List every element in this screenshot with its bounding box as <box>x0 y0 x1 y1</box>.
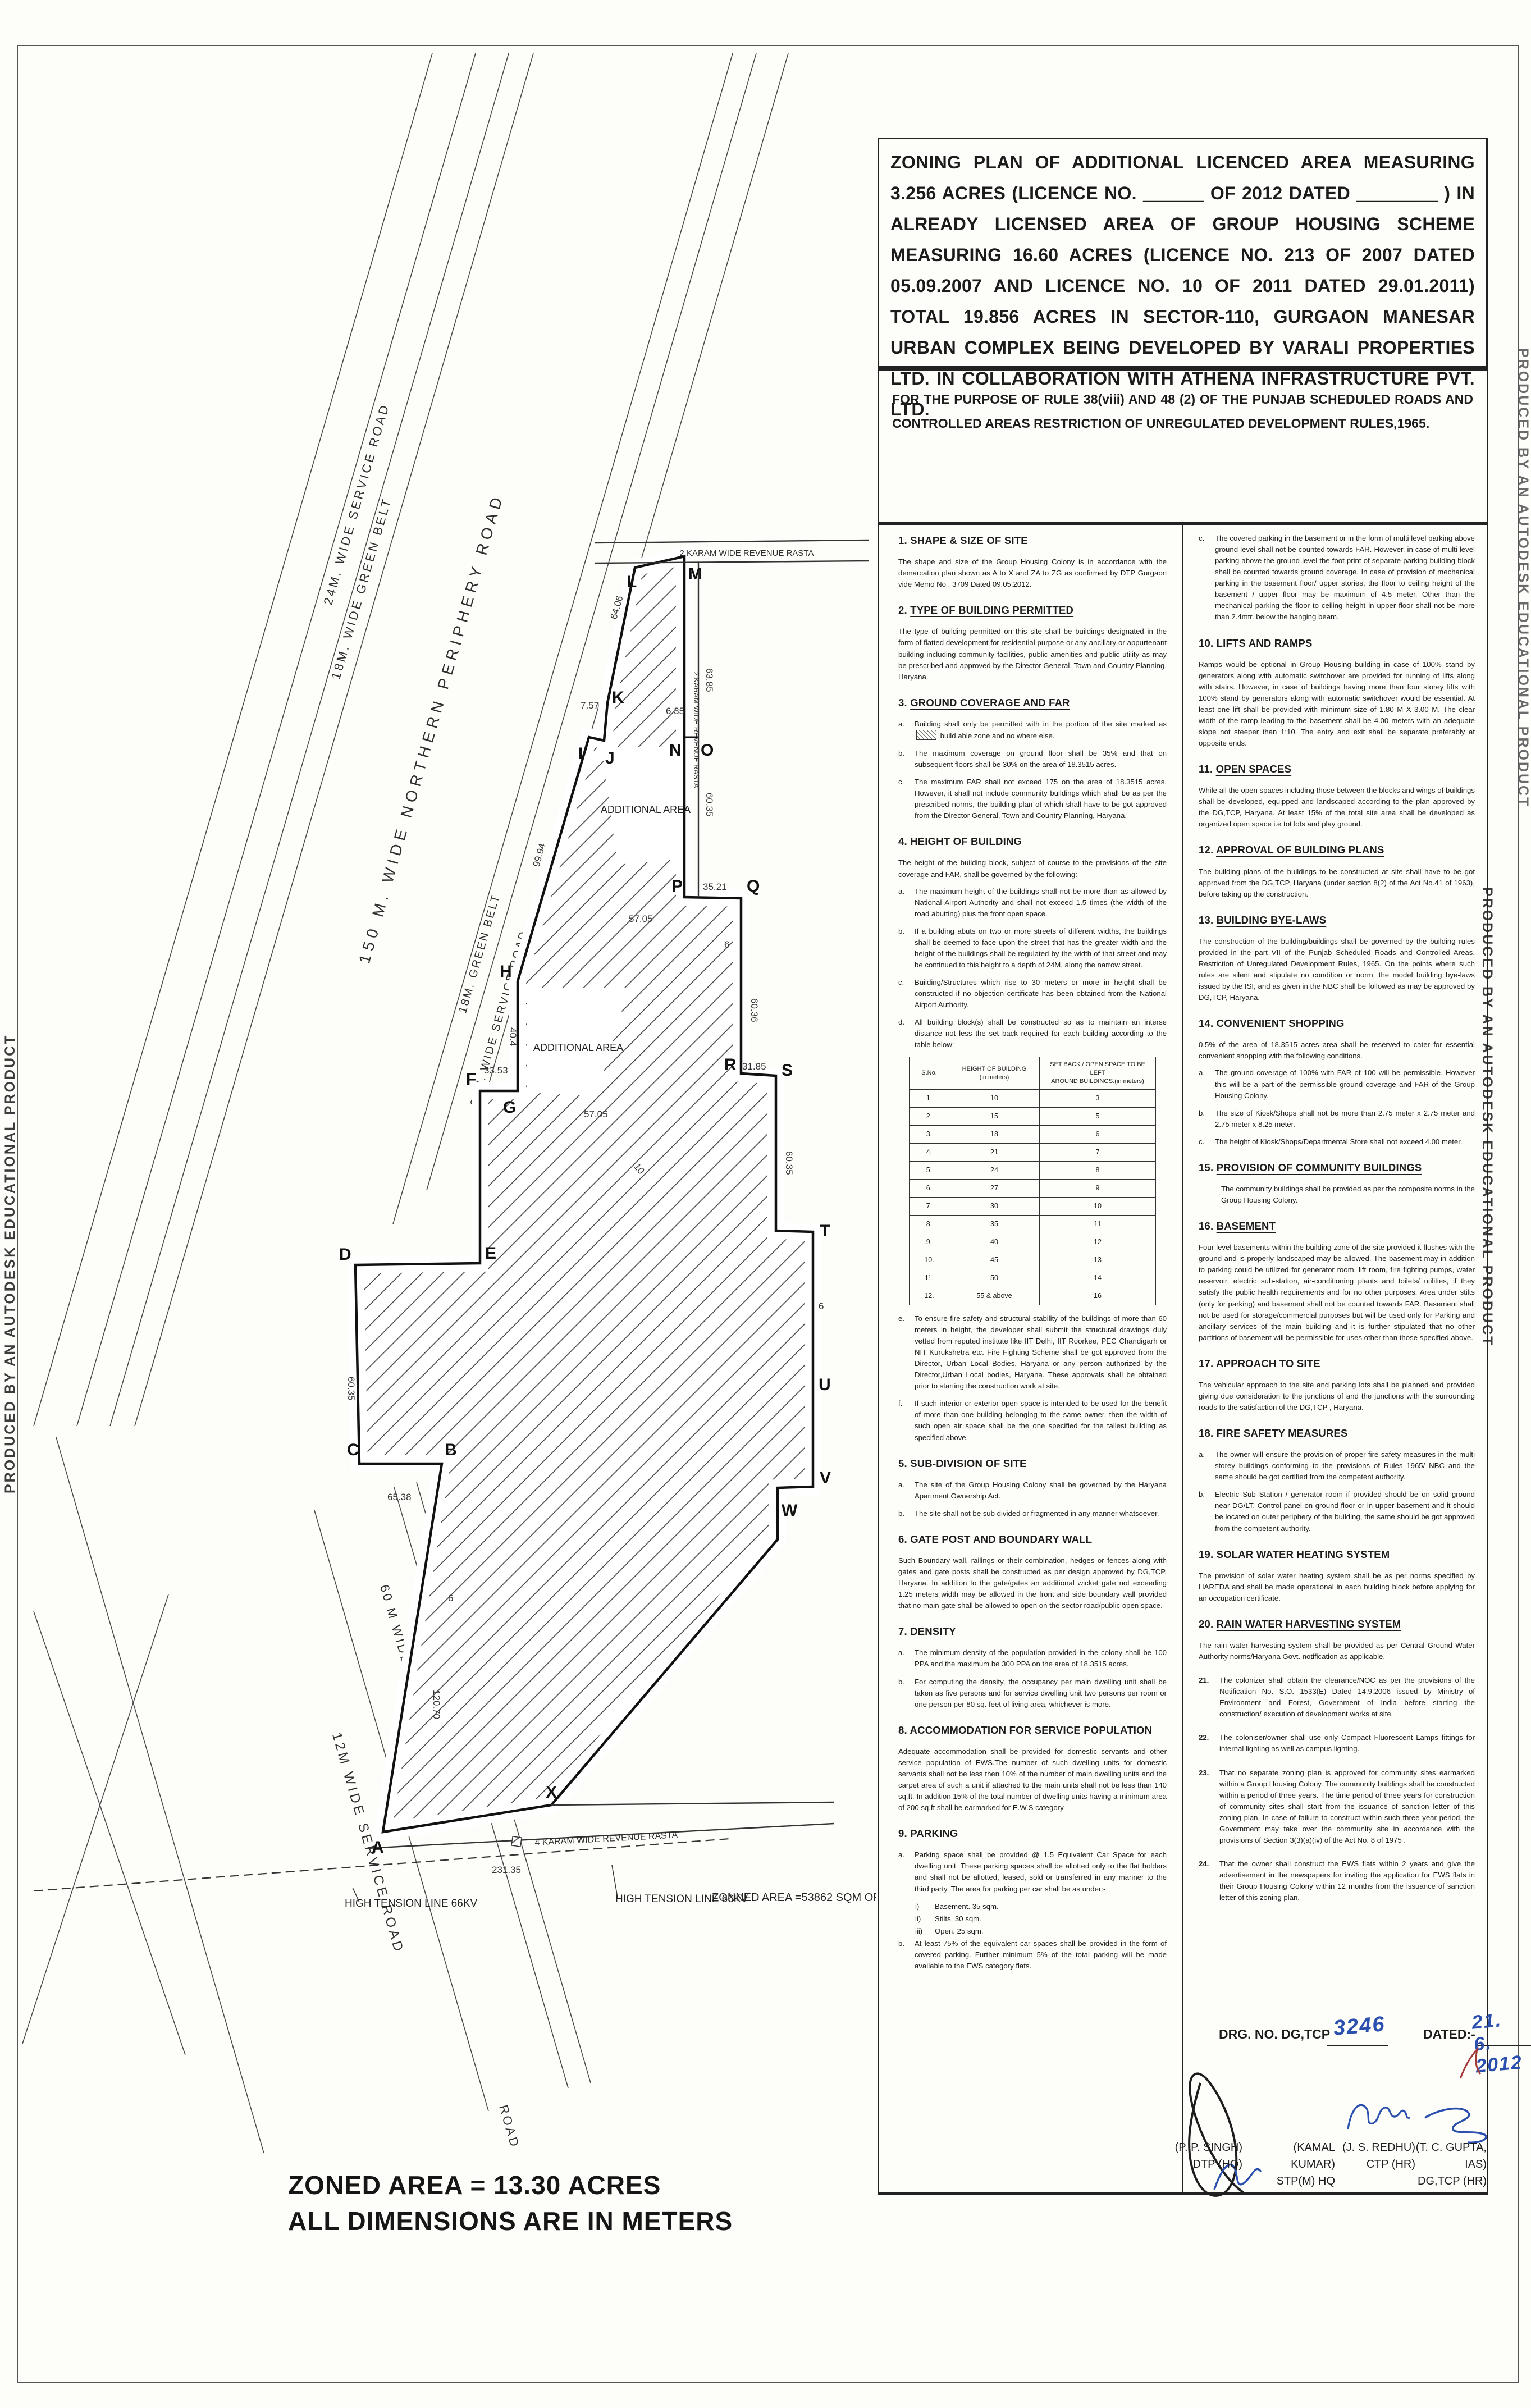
svg-text:6: 6 <box>724 939 729 950</box>
svg-text:W: W <box>782 1501 798 1520</box>
table-row: 3.186 <box>910 1125 1156 1143</box>
additional-area-label-1: ADDITIONAL AREA <box>601 804 691 815</box>
signatory-4-title: DG,TCP (HR) <box>1402 2173 1487 2190</box>
item-text: If a building abuts on two or more stree… <box>915 926 1167 971</box>
section-9-item-b: b.At least 75% of the equivalent car spa… <box>898 1938 1167 1972</box>
item-text: Stilts. 30 sqm. <box>935 1913 981 1925</box>
section-7-title: DENSITY <box>910 1625 956 1637</box>
item-label: b. <box>1199 1489 1210 1534</box>
svg-text:A: A <box>372 1838 384 1857</box>
section-2: 2. TYPE OF BUILDING PERMITTED The type o… <box>898 602 1167 682</box>
item-text: build able zone and no where else. <box>940 732 1055 740</box>
clause-number: 21. <box>1199 1675 1214 1720</box>
signatory-2-name: (KAMAL KUMAR) <box>1251 2139 1335 2173</box>
parking-open: iii)Open. 25 sqm. <box>915 1926 1167 1937</box>
signature-js-redhu <box>1348 2105 1410 2129</box>
item-label: a. <box>1199 1449 1210 1483</box>
table-row: 5.248 <box>910 1161 1156 1179</box>
item-text: Building/Structures which rise to 30 met… <box>915 977 1167 1011</box>
section-15-title: PROVISION OF COMMUNITY BUILDINGS <box>1217 1162 1422 1173</box>
clause-number: 23. <box>1199 1767 1214 1846</box>
svg-text:60.35: 60.35 <box>784 1151 794 1175</box>
panel-right-border <box>1487 525 1488 2194</box>
additional-area-label-2: ADDITIONAL AREA <box>533 1042 623 1053</box>
section-7-item-a: a.The minimum density of the population … <box>898 1647 1167 1670</box>
section-13: 13. BUILDING BYE-LAWS The construction o… <box>1199 912 1475 1003</box>
svg-text:35.21: 35.21 <box>703 881 727 892</box>
section-19-body: The provision of solar water heating sys… <box>1199 1570 1475 1604</box>
item-text: The maximum FAR shall not exceed 175 on … <box>915 776 1167 821</box>
purpose-statement: FOR THE PURPOSE OF RULE 38(viii) AND 48 … <box>892 387 1473 435</box>
svg-text:60.35: 60.35 <box>346 1377 357 1401</box>
item-text: At least 75% of the equivalent car space… <box>915 1938 1167 1972</box>
section-4-number: 4. <box>898 835 907 847</box>
section-13-title: BUILDING BYE-LAWS <box>1217 914 1327 926</box>
section-5-title: SUB-DIVISION OF SITE <box>910 1457 1027 1469</box>
clause-text: The coloniser/owner shall use only Compa… <box>1219 1732 1475 1754</box>
title-block: ZONING PLAN OF ADDITIONAL LICENCED AREA … <box>878 138 1488 368</box>
table-row: 8.3511 <box>910 1215 1156 1233</box>
section-8-body: Adequate accommodation shall be provided… <box>898 1746 1167 1813</box>
high-tension-label-1: HIGH TENSION LINE 66KV <box>345 1898 477 1909</box>
section-4-item-f: f.If such interior or exterior open spac… <box>898 1398 1167 1443</box>
section-17-body: The vehicular approach to the site and p… <box>1199 1379 1475 1413</box>
svg-text:N: N <box>669 741 682 760</box>
svg-text:6: 6 <box>448 1593 453 1603</box>
column-divider <box>1182 525 1183 2194</box>
svg-text:120.70: 120.70 <box>431 1690 442 1719</box>
section-7-item-b: b.For computing the density, the occupan… <box>898 1676 1167 1710</box>
item-label: b. <box>898 1508 910 1519</box>
svg-text:6: 6 <box>819 1301 824 1312</box>
clause-24: 24.That the owner shall construct the EW… <box>1199 1858 1475 1903</box>
section-13-number: 13. <box>1199 914 1213 926</box>
section-20-title: RAIN WATER HARVESTING SYSTEM <box>1217 1618 1401 1630</box>
section-16: 16. BASEMENT Four level basements within… <box>1199 1218 1475 1344</box>
section-1-title: SHAPE & SIZE OF SITE <box>910 534 1028 546</box>
section-14: 14. CONVENIENT SHOPPING 0.5% of the area… <box>1199 1016 1475 1148</box>
item-text: The covered parking in the basement or i… <box>1215 533 1475 623</box>
table-row: 2.155 <box>910 1107 1156 1125</box>
section-3-title: GROUND COVERAGE AND FAR <box>910 697 1070 709</box>
section-12: 12. APPROVAL OF BUILDING PLANS The build… <box>1199 842 1475 899</box>
section-6-title: GATE POST AND BOUNDARY WALL <box>910 1533 1092 1545</box>
svg-text:40.4: 40.4 <box>508 1027 518 1046</box>
dimensions-note-big: ALL DIMENSIONS ARE IN METERS <box>288 2206 733 2236</box>
section-15-body: The community buildings shall be provide… <box>1199 1184 1475 1206</box>
zoned-area-big: ZONED AREA = 13.30 ACRES <box>288 2171 661 2200</box>
item-label: b. <box>1199 1108 1210 1130</box>
section-11: 11. OPEN SPACES While all the open space… <box>1199 761 1475 830</box>
section-1-number: 1. <box>898 534 907 546</box>
svg-text:60.35: 60.35 <box>704 793 715 817</box>
section-14-number: 14. <box>1199 1017 1213 1029</box>
item-text: The size of Kiosk/Shops shall not be mor… <box>1215 1108 1475 1130</box>
table-header-height: HEIGHT OF BUILDING(in meters) <box>949 1057 1040 1090</box>
item-label: b. <box>898 748 910 770</box>
svg-text:60.36: 60.36 <box>749 998 760 1022</box>
section-12-title: APPROVAL OF BUILDING PLANS <box>1216 844 1384 856</box>
svg-text:63.85: 63.85 <box>704 668 715 692</box>
section-18-number: 18. <box>1199 1427 1213 1439</box>
section-14-item-a: a.The ground coverage of 100% with FAR o… <box>1199 1067 1475 1101</box>
section-14-title: CONVENIENT SHOPPING <box>1217 1017 1345 1029</box>
item-label: a. <box>898 1647 910 1670</box>
svg-text:H: H <box>500 962 512 981</box>
table-row: 4.217 <box>910 1143 1156 1161</box>
section-9: 9. PARKING a.Parking space shall be prov… <box>898 1826 1167 1972</box>
section-15-number: 15. <box>1199 1162 1213 1173</box>
section-19-number: 19. <box>1199 1548 1213 1560</box>
section-5-number: 5. <box>898 1457 907 1469</box>
svg-text:Q: Q <box>747 877 760 895</box>
item-text: The maximum height of the buildings shal… <box>915 886 1167 920</box>
section-3-item-a: a. Building shall only be permitted with… <box>898 719 1167 742</box>
svg-text:33.53: 33.53 <box>484 1065 508 1076</box>
section-19: 19. SOLAR WATER HEATING SYSTEM The provi… <box>1199 1547 1475 1604</box>
road-label-periphery: 150 M. WIDE NORTHERN PERIPHERY ROAD <box>355 491 507 966</box>
section-9-item-a: a.Parking space shall be provided @ 1.5 … <box>898 1849 1167 1894</box>
section-16-title: BASEMENT <box>1217 1220 1276 1232</box>
item-label: c. <box>898 776 910 821</box>
section-18-item-b: b.Electric Sub Station / generator room … <box>1199 1489 1475 1534</box>
rasta-top-label: 2 KARAM WIDE REVENUE RASTA <box>680 549 814 558</box>
section-3: 3. GROUND COVERAGE AND FAR a. Building s… <box>898 695 1167 822</box>
svg-text:O: O <box>701 741 714 760</box>
section-6-body: Such Boundary wall, railings or their co… <box>898 1555 1167 1611</box>
svg-text:6.35: 6.35 <box>666 706 684 716</box>
svg-text:J: J <box>605 749 615 767</box>
table-row: 1.103 <box>910 1089 1156 1107</box>
table-row: 10.4513 <box>910 1251 1156 1269</box>
signatory-1-name: (P. P. SINGH) <box>1169 2139 1242 2156</box>
svg-text:P: P <box>671 877 683 895</box>
table-header-sno: S.No. <box>910 1057 949 1090</box>
svg-text:V: V <box>820 1469 831 1487</box>
parking-basement: i)Basement. 35 sqm. <box>915 1901 1167 1912</box>
svg-text:L: L <box>627 573 637 591</box>
item-label: c. <box>1199 1136 1210 1148</box>
clause-22: 22.The coloniser/owner shall use only Co… <box>1199 1732 1475 1754</box>
item-label: b. <box>898 1938 910 1972</box>
svg-text:R: R <box>724 1056 737 1074</box>
item-text: Electric Sub Station / generator room if… <box>1215 1489 1475 1534</box>
section-17: 17. APPROACH TO SITE The vehicular appro… <box>1199 1356 1475 1413</box>
item-label: iii) <box>915 1926 930 1937</box>
section-17-number: 17. <box>1199 1358 1213 1369</box>
section-16-number: 16. <box>1199 1220 1213 1232</box>
table-row: 11.5014 <box>910 1269 1156 1287</box>
svg-text:D: D <box>339 1245 351 1264</box>
svg-text:T: T <box>820 1222 830 1240</box>
item-label: c. <box>1199 533 1210 623</box>
section-6: 6. GATE POST AND BOUNDARY WALL Such Boun… <box>898 1532 1167 1611</box>
svg-text:I: I <box>578 744 583 763</box>
section-3-number: 3. <box>898 697 907 709</box>
section-4: 4. HEIGHT OF BUILDING The height of the … <box>898 834 1167 1443</box>
parking-stilts: ii)Stilts. 30 sqm. <box>915 1913 1167 1925</box>
section-11-number: 11. <box>1199 763 1213 775</box>
section-11-title: OPEN SPACES <box>1216 763 1291 775</box>
item-text: The minimum density of the population pr… <box>915 1647 1167 1670</box>
section-11-body: While all the open spaces including thos… <box>1199 785 1475 830</box>
signature-area: DRG. NO. DG,TCP 3246 DATED:- 21. 6. 2012… <box>878 1971 1488 2192</box>
item-text: All building block(s) shall be construct… <box>915 1017 1167 1050</box>
section-4-item-d: d.All building block(s) shall be constru… <box>898 1017 1167 1050</box>
item-text: The height of Kiosk/Shops/Departmental S… <box>1215 1136 1463 1148</box>
section-17-title: APPROACH TO SITE <box>1216 1358 1320 1369</box>
item-label: i) <box>915 1901 930 1912</box>
item-text: Parking space shall be provided @ 1.5 Eq… <box>915 1849 1167 1894</box>
item-label: a. <box>1199 1067 1210 1101</box>
section-7-number: 7. <box>898 1625 907 1637</box>
section-4-item-e: e.To ensure fire safety and structural s… <box>898 1313 1167 1392</box>
road-label-road: ROAD <box>496 2103 522 2150</box>
signature-tc-gupta <box>1425 2109 1486 2143</box>
clause-number: 24. <box>1199 1858 1214 1903</box>
signatory-1: (P. P. SINGH) DTP (HQ) <box>1169 2139 1242 2173</box>
item-label: d. <box>898 1017 910 1050</box>
clause-text: That the owner shall construct the EWS f… <box>1219 1858 1475 1903</box>
signatory-4-name: (T. C. GUPTA, IAS) <box>1402 2139 1487 2173</box>
item-text: Basement. 35 sqm. <box>935 1901 999 1912</box>
panel-left-border <box>878 525 879 2194</box>
purpose-block: FOR THE PURPOSE OF RULE 38(viii) AND 48 … <box>878 368 1488 525</box>
regulations-column-right: c.The covered parking in the basement or… <box>1199 531 1475 1968</box>
section-18: 18. FIRE SAFETY MEASURES a.The owner wil… <box>1199 1425 1475 1534</box>
clause-text: That no separate zoning plan is approved… <box>1219 1767 1475 1846</box>
section-8-number: 8. <box>898 1724 907 1736</box>
svg-text:B: B <box>445 1441 457 1459</box>
section-1-body: The shape and size of the Group Housing … <box>898 556 1167 590</box>
svg-text:U: U <box>819 1376 831 1394</box>
item-text: The site shall not be sub divided or fra… <box>915 1508 1159 1519</box>
section-14-item-c: c.The height of Kiosk/Shops/Departmental… <box>1199 1136 1475 1148</box>
svg-text:7.57: 7.57 <box>581 700 599 711</box>
item-label: a. <box>898 1479 910 1502</box>
section-9-item-c: c.The covered parking in the basement or… <box>1199 533 1475 623</box>
section-20: 20. RAIN WATER HARVESTING SYSTEM The rai… <box>1199 1616 1475 1662</box>
item-text: The maximum coverage on ground floor sha… <box>915 748 1167 770</box>
section-4-item-b: b.If a building abuts on two or more str… <box>898 926 1167 971</box>
clause-21: 21.The colonizer shall obtain the cleara… <box>1199 1675 1475 1720</box>
item-text: The site of the Group Housing Colony sha… <box>915 1479 1167 1502</box>
height-setback-table: S.No. HEIGHT OF BUILDING(in meters) SET … <box>909 1057 1156 1305</box>
svg-text:F: F <box>466 1070 476 1089</box>
clause-number: 22. <box>1199 1732 1214 1754</box>
section-4-intro: The height of the building block, subjec… <box>898 857 1167 880</box>
signatory-2-title: STP(M) HQ <box>1251 2173 1335 2190</box>
signatory-2: (KAMAL KUMAR) STP(M) HQ <box>1251 2139 1335 2190</box>
red-check-mark <box>1460 2049 1480 2078</box>
section-12-number: 12. <box>1199 844 1213 856</box>
section-2-body: The type of building permitted on this s… <box>898 626 1167 682</box>
section-3-item-c: c.The maximum FAR shall not exceed 175 o… <box>898 776 1167 821</box>
svg-text:G: G <box>503 1098 516 1117</box>
section-9-number: 9. <box>898 1827 907 1839</box>
section-12-body: The building plans of the buildings to b… <box>1199 866 1475 900</box>
item-label: a. <box>898 886 910 920</box>
item-text: Open. 25 sqm. <box>935 1926 984 1937</box>
svg-text:M: M <box>688 565 702 583</box>
section-9-title: PARKING <box>910 1827 958 1839</box>
clause-text: The colonizer shall obtain the clearance… <box>1219 1675 1475 1720</box>
section-15: 15. PROVISION OF COMMUNITY BUILDINGS The… <box>1199 1160 1475 1206</box>
item-label: b. <box>898 926 910 971</box>
section-5-item-a: a.The site of the Group Housing Colony s… <box>898 1479 1167 1502</box>
signatory-1-title: DTP (HQ) <box>1169 2156 1242 2173</box>
item-label: f. <box>898 1398 910 1443</box>
section-7: 7. DENSITY a.The minimum density of the … <box>898 1624 1167 1710</box>
section-20-body: The rain water harvesting system shall b… <box>1199 1640 1475 1662</box>
section-3-item-b: b.The maximum coverage on ground floor s… <box>898 748 1167 770</box>
svg-text:E: E <box>485 1244 496 1263</box>
item-text: If such interior or exterior open space … <box>915 1398 1167 1443</box>
section-5: 5. SUB-DIVISION OF SITE a.The site of th… <box>898 1456 1167 1519</box>
item-label: b. <box>898 1676 910 1710</box>
section-14-intro: 0.5% of the area of 18.3515 acres area s… <box>1199 1039 1475 1062</box>
regulations-column-left: 1. SHAPE & SIZE OF SITE The shape and si… <box>898 531 1167 1968</box>
section-4-title: HEIGHT OF BUILDING <box>910 835 1022 847</box>
table-row: 7.3010 <box>910 1197 1156 1215</box>
item-label: a. <box>898 719 910 742</box>
section-6-number: 6. <box>898 1533 907 1545</box>
svg-text:57.05: 57.05 <box>629 913 653 924</box>
rasta-bottom-label: 4 KARAM WIDE REVENUE RASTA <box>534 1830 678 1847</box>
svg-text:65.38: 65.38 <box>387 1492 412 1502</box>
section-18-title: FIRE SAFETY MEASURES <box>1217 1427 1348 1439</box>
item-text: Building shall only be permitted with in… <box>915 720 1167 728</box>
zoning-plan-sheet: { "banner": "PRODUCED BY AN AUTODESK EDU… <box>0 0 1531 2408</box>
section-20-number: 20. <box>1199 1618 1213 1630</box>
section-4-item-a: a.The maximum height of the buildings sh… <box>898 886 1167 920</box>
svg-text:S: S <box>782 1061 793 1080</box>
section-10-body: Ramps would be optional in Group Housing… <box>1199 659 1475 750</box>
section-2-number: 2. <box>898 604 907 616</box>
item-label: c. <box>898 977 910 1011</box>
section-4-item-c: c.Building/Structures which rise to 30 m… <box>898 977 1167 1011</box>
item-text: The ground coverage of 100% with FAR of … <box>1215 1067 1475 1101</box>
section-10: 10. LIFTS AND RAMPS Ramps would be optio… <box>1199 636 1475 750</box>
rasta-side-label: 2 KARAM WIDE REVENUE RASTA <box>692 671 701 788</box>
section-2-title: TYPE OF BUILDING PERMITTED <box>910 604 1073 616</box>
item-text: For computing the density, the occupancy… <box>915 1676 1167 1710</box>
table-header-setback: SET BACK / OPEN SPACE TO BE LEFTAROUND B… <box>1040 1057 1156 1090</box>
section-10-number: 10. <box>1199 637 1213 649</box>
table-row: 6.279 <box>910 1179 1156 1197</box>
table-row: 12.55 & above16 <box>910 1287 1156 1305</box>
panel-bottom-border <box>878 2192 1488 2195</box>
signature-pp-singh <box>1189 2073 1244 2195</box>
svg-text:X: X <box>546 1783 557 1802</box>
section-16-body: Four level basements within the building… <box>1199 1242 1475 1344</box>
table-row: 9.4012 <box>910 1233 1156 1251</box>
zonned-area-note: ZONNED AREA =53862 SQM OR 13.309 ACRES <box>712 1891 876 1904</box>
section-14-item-b: b.The size of Kiosk/Shops shall not be m… <box>1199 1108 1475 1130</box>
svg-text:C: C <box>347 1441 359 1459</box>
section-8: 8. ACCOMMODATION FOR SERVICE POPULATION … <box>898 1722 1167 1813</box>
buildable-zone-swatch <box>916 730 936 740</box>
signatory-4: (T. C. GUPTA, IAS) DG,TCP (HR) <box>1402 2139 1487 2190</box>
item-text: The owner will ensure the provision of p… <box>1215 1449 1475 1483</box>
section-19-title: SOLAR WATER HEATING SYSTEM <box>1217 1548 1390 1560</box>
section-10-title: LIFTS AND RAMPS <box>1217 637 1313 649</box>
svg-text:31.85: 31.85 <box>742 1061 766 1072</box>
svg-text:231.35: 231.35 <box>492 1865 521 1875</box>
item-label: e. <box>898 1313 910 1392</box>
svg-text:57.05: 57.05 <box>584 1109 608 1120</box>
item-label: a. <box>898 1849 910 1894</box>
section-13-body: The construction of the building/buildin… <box>1199 936 1475 1003</box>
site-plan-drawing: 24M. WIDE SERVICE ROAD 18M. WIDE GREEN B… <box>0 0 876 2408</box>
section-5-item-b: b.The site shall not be sub divided or f… <box>898 1508 1167 1519</box>
item-label: ii) <box>915 1913 930 1925</box>
section-18-item-a: a.The owner will ensure the provision of… <box>1199 1449 1475 1483</box>
section-8-title: ACCOMMODATION FOR SERVICE POPULATION <box>910 1724 1153 1736</box>
clause-23: 23.That no separate zoning plan is appro… <box>1199 1767 1475 1846</box>
svg-text:K: K <box>612 688 624 707</box>
section-1: 1. SHAPE & SIZE OF SITE The shape and si… <box>898 533 1167 590</box>
item-text: To ensure fire safety and structural sta… <box>915 1313 1167 1392</box>
